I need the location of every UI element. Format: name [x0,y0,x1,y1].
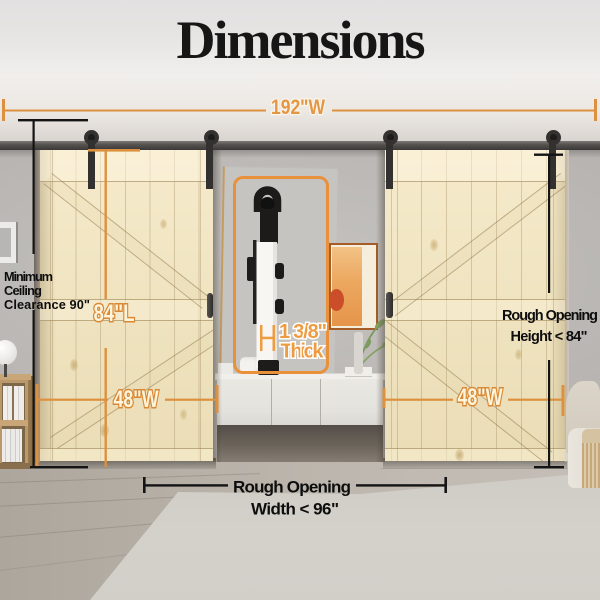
svg-text:Rough Opening: Rough Opening [502,308,598,324]
svg-text:Rough Opening: Rough Opening [233,478,351,497]
svg-text:Clearance 90": Clearance 90" [4,297,90,312]
svg-text:Minimum: Minimum [4,269,53,284]
svg-text:Width < 96": Width < 96" [251,500,339,519]
svg-text:48"W: 48"W [458,384,503,411]
svg-text:48"W: 48"W [114,386,159,413]
svg-text:Ceiling: Ceiling [4,283,42,298]
svg-text:Thick: Thick [281,341,325,363]
svg-text:84"L: 84"L [94,300,135,327]
svg-text:Height < 84": Height < 84" [511,329,588,345]
svg-text:192"W: 192"W [271,96,325,119]
